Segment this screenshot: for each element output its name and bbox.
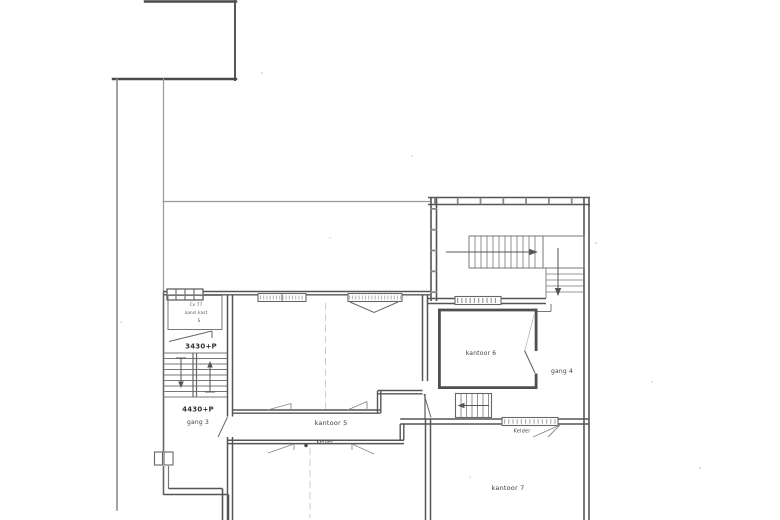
small-cellar-stair [456,394,492,418]
level-mark-upper: 3430+P [185,344,217,351]
stair-hall-top-right [428,197,590,520]
window-center-left [258,294,306,302]
level-mark-lower: 4430+P [182,407,214,414]
closet-label-line2: aansl.kast [185,312,208,316]
kantoor6-walls [438,304,551,389]
closet-label-line3: S [198,320,201,324]
room-label-kantoor7: kantoor 7 [492,485,525,492]
closet-label-line1: Cv 77 [190,304,203,308]
kantoor7-walls [400,418,589,520]
window-left-block [167,289,203,300]
room-label-kelder-center: Kelder [316,441,333,446]
room-label-kelder-right: Kelder [513,430,530,435]
room-label-kantoor6: kantoor 6 [466,351,497,357]
scan-noise [120,72,701,478]
central-rooms [218,295,431,520]
room-label-kantoor5: kantoor 5 [315,420,348,427]
window-center-right [348,294,402,313]
site-outline [113,0,430,510]
room-label-gang3: gang 3 [187,420,209,426]
room-label-gang4: gang 4 [551,369,573,375]
floorplan-linework [0,0,780,520]
floorplan-sheet: Cv 77 aansl.kast S 3430+P 4430+P gang 3 … [0,0,780,520]
